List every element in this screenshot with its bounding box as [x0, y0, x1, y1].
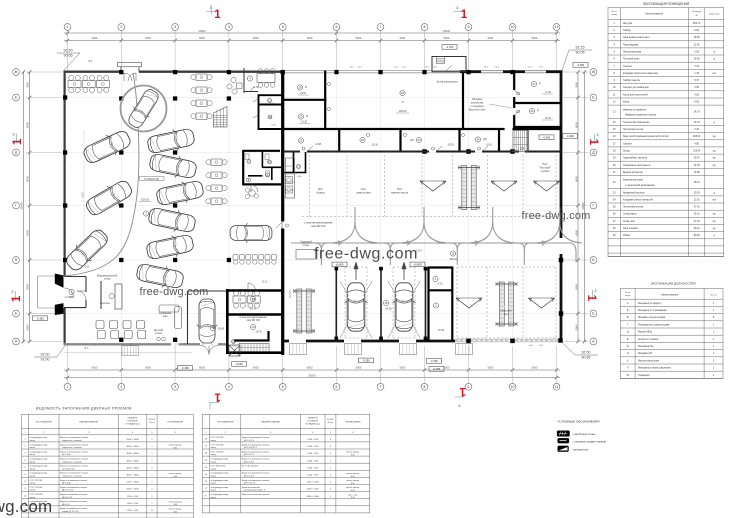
svg-text:Ворота металлические (скрытые): Ворота металлические (скрытые): [242, 494, 270, 496]
svg-text:19.57: 19.57: [694, 157, 701, 160]
svg-text:службы: службы: [541, 170, 550, 173]
svg-text:2100 × 910: 2100 × 910: [307, 466, 319, 469]
svg-text:заказу: заказу: [211, 476, 216, 478]
svg-text:по индивидуальному: по индивидуальному: [30, 451, 48, 453]
svg-text:РАЗМЕРЫ: РАЗМЕРЫ: [308, 417, 318, 420]
svg-text:В 60: В 60: [351, 490, 355, 492]
svg-text:Двери из алюминиевых сплавов: Двери из алюминиевых сплавов: [242, 451, 269, 453]
svg-text:6000: 6000: [92, 366, 98, 370]
svg-text:6000: 6000: [26, 176, 30, 182]
svg-text:металлические: металлические: [62, 468, 75, 470]
svg-text:Ок-1: Ок-1: [529, 345, 534, 347]
svg-text:3000: 3000: [26, 324, 30, 330]
svg-text:Ок-1: Ок-1: [350, 67, 355, 69]
svg-text:Ок-1: Ок-1: [539, 67, 544, 69]
svg-text:7: 7: [380, 25, 382, 29]
svg-text:Двери из алюминиевых сплавов: Двери из алюминиевых сплавов: [60, 501, 87, 503]
svg-text:В КЛАДКЕ (мм): В КЛАДКЕ (мм): [306, 423, 321, 426]
svg-text:М (шт): М (шт): [149, 422, 155, 424]
svg-text:16: 16: [385, 301, 388, 305]
svg-text:92.50: 92.50: [64, 49, 73, 53]
svg-text:Мастер МКЦ: Мастер МКЦ: [638, 332, 652, 334]
svg-text:-0.490: -0.490: [566, 134, 574, 138]
svg-text:8.94: 8.94: [69, 297, 74, 299]
svg-text:Двери из алюминиевых сплавов: Двери из алюминиевых сплавов: [242, 437, 269, 439]
svg-text:free-dwg.com: free-dwg.com: [0, 497, 52, 516]
svg-text:1: 1: [459, 385, 466, 397]
svg-text:ПРОЕМОВ: ПРОЕМОВ: [128, 421, 139, 423]
svg-text:диагностики: диагностики: [356, 192, 371, 195]
svg-text:разукомпл.: разукомпл.: [501, 311, 513, 313]
svg-text:Турникет: Турникет: [290, 289, 292, 298]
svg-text:Наименования: Наименования: [645, 12, 664, 16]
svg-text:М (шт): М (шт): [328, 422, 334, 424]
svg-text:Продавец отдела продаж: Продавец отдела продаж: [638, 317, 666, 319]
svg-text:Тамбур санузла: Тамбур санузла: [623, 80, 641, 82]
svg-text:заказу: заказу: [30, 440, 35, 442]
svg-text:уголок: уголок: [155, 332, 163, 335]
svg-text:14.30: 14.30: [694, 164, 701, 167]
svg-text:free-dwg.com: free-dwg.com: [139, 286, 208, 298]
svg-text:498.24: 498.24: [449, 258, 457, 261]
svg-text:12.91: 12.91: [694, 198, 701, 201]
svg-text:15.32: 15.32: [694, 213, 701, 216]
svg-text:Ворота из алюминиевых сплавов: Ворота из алюминиевых сплавов: [60, 473, 88, 475]
svg-text:Архиватной росотки: Архиватной росотки: [623, 191, 645, 194]
svg-text:5.07: 5.07: [694, 79, 699, 82]
svg-text:19: 19: [299, 86, 302, 90]
svg-text:/П: /П: [539, 84, 542, 86]
svg-text:6: 6: [336, 385, 338, 389]
svg-text:Двери из алюминиевых сплавов: Двери из алюминиевых сплавов: [242, 444, 269, 446]
svg-text:2100 × 910: 2100 × 910: [307, 474, 319, 477]
svg-text:заказу: заказу: [30, 454, 35, 456]
svg-text:заказу: заказу: [211, 447, 216, 449]
svg-text:6000: 6000: [575, 176, 579, 182]
svg-text:3600 × 3000: 3600 × 3000: [126, 459, 139, 462]
svg-text:14.68: 14.68: [315, 143, 322, 146]
svg-text:4: 4: [228, 25, 230, 29]
svg-text:ГОСТ 30970-2002: ГОСТ 30970-2002: [211, 466, 226, 468]
svg-text:ЭКСПЛИКАЦИЯ ДОЛЖНОСТЕЙ: ЭКСПЛИКАЦИЯ ДОЛЖНОСТЕЙ: [650, 282, 695, 286]
svg-text:плану: плану: [611, 14, 618, 16]
svg-text:20: 20: [300, 115, 303, 119]
svg-text:Лестничная клетка: Лестничная клетка: [623, 129, 644, 131]
svg-text:6.00: 6.00: [694, 101, 699, 104]
svg-text:30000: 30000: [198, 29, 206, 33]
svg-text:-1.700: -1.700: [446, 45, 454, 49]
svg-text:2100 × 910: 2100 × 910: [127, 509, 139, 512]
svg-text:1: 1: [67, 385, 69, 389]
svg-text:Касса: Касса: [623, 102, 630, 104]
svg-text:2100 × 910: 2100 × 910: [307, 445, 319, 448]
svg-text:Менеджер по врем. разукомпл.: Менеджер по врем. разукомпл.: [638, 368, 672, 370]
svg-text:по индивидуальному: по индивидуальному: [211, 487, 229, 489]
svg-text:+0.000: +0.000: [413, 263, 422, 267]
svg-text:/П: /П: [537, 111, 540, 113]
svg-text:15.78: 15.78: [256, 331, 263, 334]
svg-text:2100 × 1310: 2100 × 1310: [307, 481, 320, 484]
svg-text:Ворота из алюминиевых сплавов: Ворота из алюминиевых сплавов: [60, 459, 88, 461]
svg-text:6000: 6000: [145, 366, 151, 370]
svg-text:1: 1: [214, 391, 221, 403]
svg-text:Лестничная клетка: Лестничная клетка: [623, 207, 644, 209]
svg-text:ПРИМЕЧАНИЕ: ПРИМЕЧАНИЕ: [345, 421, 361, 424]
svg-text:1*: 1*: [205, 488, 207, 490]
svg-text:5.50: 5.50: [694, 50, 699, 53]
svg-text:free-dwg.com: free-dwg.com: [314, 246, 418, 263]
svg-text:Ворота из алюминиевых сплавов: Ворота из алюминиевых сплавов: [60, 451, 88, 453]
svg-text:В-2: В-2: [89, 60, 93, 63]
svg-text:Менеджер по страхованию: Менеджер по страхованию: [638, 310, 667, 312]
svg-text:ДН О Б 21-13: ДН О Б 21-13: [244, 483, 255, 485]
svg-text:Охранники: Охранники: [638, 375, 650, 377]
svg-text:1: 1: [585, 295, 597, 302]
svg-text:заказу: заказу: [30, 461, 35, 463]
svg-text:ГОСТ 23747-88: ГОСТ 23747-88: [211, 444, 224, 446]
svg-text:-5.000: -5.000: [577, 63, 585, 67]
svg-text:Кладовая уборочного инвентаря: Кладовая уборочного инвентаря: [623, 73, 658, 75]
svg-text:6000: 6000: [26, 122, 30, 128]
svg-text:9: 9: [468, 385, 470, 389]
svg-text:6000: 6000: [575, 283, 579, 289]
svg-text:заказу: заказу: [30, 490, 35, 492]
svg-text:26.80: 26.80: [218, 328, 225, 331]
svg-text:ДН О Б 21-9: ДН О Б 21-9: [244, 461, 254, 463]
svg-text:-0.780: -0.780: [433, 367, 441, 371]
svg-text:по индивидуальному: по индивидуальному: [30, 508, 48, 510]
svg-text:НАИМЕНОВАНИЕ: НАИМЕНОВАНИЕ: [261, 421, 280, 424]
svg-text:3600 × 3000: 3600 × 3000: [126, 445, 139, 448]
svg-text:заказу: заказу: [30, 497, 35, 499]
svg-text:заказу: заказу: [211, 490, 216, 492]
svg-text:18: 18: [401, 91, 404, 95]
svg-text:заказу: заказу: [30, 447, 35, 449]
svg-text:ВД: ВД: [713, 150, 716, 152]
svg-text:секционные с калиткой: секционные с калиткой: [62, 460, 81, 463]
svg-text:18.10: 18.10: [372, 144, 379, 147]
svg-text:М: М: [627, 374, 629, 377]
svg-text:ДА О Б 21-10: ДА О Б 21-10: [62, 489, 73, 492]
svg-text:Высотой 0.15м: Высотой 0.15м: [469, 109, 486, 112]
svg-text:замены масла: замены масла: [391, 192, 408, 195]
svg-text:Двери из алюминиевых сплавов: Двери из алюминиевых сплавов: [60, 480, 87, 482]
svg-text:17.91: 17.91: [694, 206, 701, 209]
svg-text:2100 × 1010: 2100 × 1010: [307, 488, 320, 491]
svg-text:№ по: № по: [612, 10, 618, 13]
svg-text:16: 16: [452, 252, 455, 256]
svg-text:2100 × 910: 2100 × 910: [307, 459, 319, 462]
svg-text:+0.000: +0.000: [335, 263, 344, 267]
svg-text:по индивидуальному: по индивидуальному: [211, 480, 229, 482]
svg-text:полотна приоткр.: полотна приоткр.: [168, 509, 182, 511]
svg-text:Ок-1: Ок-1: [484, 67, 489, 69]
svg-text:Ок-1: Ок-1: [433, 67, 438, 69]
svg-text:УСЛОВНЫЕ ОБОЗНАЧЕНИЯ: УСЛОВНЫЕ ОБОЗНАЧЕНИЯ: [557, 420, 599, 424]
svg-text:Кол-во: Кол-во: [710, 295, 717, 297]
svg-text:3: 3: [174, 385, 176, 389]
svg-text:Дин — №д: Дин — №д: [349, 493, 357, 496]
svg-text:ПРОЕМОВ: ПРОЕМОВ: [308, 421, 319, 423]
svg-text:-0.490: -0.490: [543, 135, 551, 139]
svg-text:Названия сервисного центра: Названия сервисного центра: [625, 115, 657, 117]
svg-text:91.00: 91.00: [41, 358, 50, 362]
svg-text:16.48: 16.48: [694, 58, 701, 61]
svg-text:Склад масел: Склад масел: [623, 214, 637, 216]
svg-text:3000 × 3000: 3000 × 3000: [307, 495, 320, 498]
svg-text:11: 11: [555, 385, 559, 389]
svg-text:10: 10: [268, 160, 271, 164]
svg-text:ВД: ВД: [713, 165, 716, 167]
svg-text:619.30: 619.30: [141, 199, 149, 202]
svg-text:6: 6: [336, 25, 338, 29]
svg-text:В-12: В-12: [262, 281, 268, 284]
svg-text:Двери из алюминиевых сплавов: Двери из алюминиевых сплавов: [242, 480, 269, 482]
svg-text:14.14: 14.14: [250, 308, 257, 311]
svg-text:5000: 5000: [400, 366, 406, 370]
svg-text:14.14: 14.14: [694, 111, 701, 114]
svg-text:В 60: В 60: [173, 504, 177, 506]
svg-text:Примечание: Примечание: [709, 14, 719, 16]
svg-text:-0.180: -0.180: [181, 366, 189, 370]
svg-text:стенд: стенд: [303, 245, 310, 247]
svg-text:Г: Г: [15, 204, 17, 208]
svg-text:ВС Г Б Пу 2100-910: ВС Г Б Пу 2100-910: [242, 466, 258, 468]
svg-text:6000: 6000: [26, 283, 30, 289]
svg-text:Ворота из алюминиевых сплавов: Ворота из алюминиевых сплавов: [60, 437, 88, 439]
svg-text:ВД: ВД: [713, 158, 716, 160]
svg-text:16.48: 16.48: [438, 330, 444, 332]
svg-text:Склад шин: Склад шин: [623, 221, 635, 223]
svg-text:12: 12: [269, 115, 272, 119]
svg-text:секционные с калиткой: секционные с калиткой: [62, 446, 81, 449]
svg-text:90.05: 90.05: [576, 51, 585, 55]
svg-text:3000: 3000: [575, 81, 579, 87]
svg-text:2100 × 910: 2100 × 910: [127, 502, 139, 505]
svg-text:6000: 6000: [575, 229, 579, 235]
svg-text:В 60: В 60: [351, 497, 355, 499]
svg-text:ДП: ДП: [483, 138, 487, 141]
svg-text:5000: 5000: [488, 366, 494, 370]
svg-text:ДН О Б Дв: ДН О Б Дв: [62, 483, 71, 485]
svg-text:14.68: 14.68: [694, 171, 701, 174]
svg-text:Электрощитовая: Электрощитовая: [623, 51, 642, 53]
svg-text:авто: авто: [504, 314, 509, 316]
svg-text:/П: /П: [401, 102, 404, 104]
svg-text:6000: 6000: [26, 229, 30, 235]
svg-text:2100 × 910: 2100 × 910: [307, 438, 319, 441]
svg-text:Технические помещения: Технические помещения: [623, 122, 650, 124]
svg-text:В 60: В 60: [173, 447, 177, 449]
svg-text:Зона техобслуживания ремонта (: Зона техобслуживания ремонта (6 постов): [623, 136, 669, 138]
svg-text:Г: Г: [592, 204, 594, 208]
svg-text:2200 × 1300: 2200 × 1300: [126, 488, 139, 491]
svg-text:заказу: заказу: [211, 454, 216, 456]
svg-text:ВМ: ВМ: [713, 73, 716, 75]
svg-text:полотна приоткр.: полотна приоткр.: [346, 487, 360, 489]
svg-text:полотна приоткр.: полотна приоткр.: [346, 452, 360, 454]
svg-text:2: 2: [120, 385, 122, 389]
svg-text:18.10: 18.10: [694, 181, 701, 184]
svg-text:заказу: заказу: [211, 483, 216, 485]
svg-text:В 60: В 60: [173, 476, 177, 478]
svg-text:3000: 3000: [26, 81, 30, 87]
svg-text:Ок-1: Ок-1: [358, 67, 363, 69]
svg-text:21: 21: [300, 139, 303, 143]
svg-text:по индивидуальному: по индивидуальному: [30, 466, 48, 468]
svg-text:Ворота из алюминиевых сплавов: Ворота из алюминиевых сплавов: [60, 466, 88, 468]
svg-text:Санузел: Санузел: [623, 66, 633, 68]
svg-text:Санузел для инвалидов: Санузел для инвалидов: [623, 87, 649, 89]
svg-text:2: 2: [120, 25, 122, 29]
svg-text:В 60: В 60: [173, 511, 177, 513]
svg-text:-0.150: -0.150: [36, 316, 44, 320]
svg-text:14.57: 14.57: [300, 92, 307, 95]
svg-text:В КЛАДКЕ (мм): В КЛАДКЕ (мм): [125, 423, 140, 426]
svg-text:1: 1: [461, 9, 468, 21]
svg-text:5000: 5000: [532, 36, 538, 40]
svg-text:Зона приемки: Зона приемки: [623, 228, 639, 230]
svg-text:92.50: 92.50: [582, 351, 591, 355]
svg-text:Ок-1: Ок-1: [394, 67, 399, 69]
svg-text:92.15: 92.15: [576, 46, 585, 50]
svg-text:3.43: 3.43: [694, 65, 699, 68]
svg-text:1.78: 1.78: [694, 72, 699, 75]
svg-text:ДН О Б 21-9: ДН О Б 21-9: [244, 476, 254, 478]
svg-text:ДА 21-10: ДА 21-10: [62, 503, 70, 506]
svg-text:8: 8: [424, 385, 426, 389]
svg-text:полотна приоткр.: полотна приоткр.: [346, 480, 360, 482]
svg-text:/П: /П: [305, 87, 308, 89]
svg-text:стенд: стенд: [104, 278, 111, 281]
svg-text:Двери из алюминиевых сплавов: Двери из алюминиевых сплавов: [60, 487, 87, 489]
svg-text:17: 17: [297, 165, 300, 169]
svg-text:3600 × 3000: 3600 × 3000: [126, 466, 139, 469]
svg-text:В-3: В-3: [85, 347, 89, 350]
svg-text:8: 8: [424, 25, 426, 29]
svg-text:Двери из алюминиевых сплавов: Двери из алюминиевых сплавов: [242, 459, 269, 461]
svg-text:ВД: ВД: [713, 228, 716, 230]
svg-text:4.00: 4.00: [694, 93, 699, 96]
svg-text:17.02: 17.02: [694, 220, 701, 223]
svg-text:1: 1: [214, 9, 221, 21]
svg-text:Зона выдачи новых авто: Зона выдачи новых авто: [623, 37, 650, 39]
svg-text:ВД: ВД: [713, 221, 716, 223]
svg-text:ДН О Б 21-9: ДН О Б 21-9: [244, 454, 254, 456]
svg-text:R=300(Ж=40): R=300(Ж=40): [145, 179, 160, 181]
svg-text:Гарантийные запчасти: Гарантийные запчасти: [623, 157, 648, 160]
svg-text:3*: 3*: [205, 495, 207, 497]
svg-text:24: 24: [477, 138, 480, 142]
svg-text:заказу: заказу: [30, 511, 35, 513]
svg-text:90.85: 90.85: [582, 356, 591, 360]
svg-text:по индивидуальному: по индивидуальному: [30, 444, 48, 446]
svg-text:ДН О Б Пр 21-9: ДН О Б Пр 21-9: [244, 447, 257, 449]
svg-text:Двери металлические: Двери металлические: [242, 487, 260, 489]
svg-text:16.78: 16.78: [694, 121, 701, 124]
svg-text:1: 1: [587, 139, 599, 146]
svg-text:КОЛ-ВО: КОЛ-ВО: [149, 419, 156, 421]
svg-text:10: 10: [511, 385, 515, 389]
svg-text:ДН О Б Дв: ДН О Б Дв: [62, 454, 71, 456]
svg-text:ВЕДОМОСТЬ ЗАПОЛНЕНИЯ ДВЕРНЫХ: ВЕДОМОСТЬ ЗАПОЛНЕНИЯ ДВЕРНЫХ ПРОЕМОВ: [36, 406, 132, 410]
svg-text:Касса для посетителей: Касса для посетителей: [623, 93, 648, 96]
svg-text:заказу: заказу: [211, 461, 216, 463]
svg-text:6000: 6000: [199, 36, 205, 40]
svg-text:ВМ: ВМ: [713, 199, 716, 201]
svg-text:В 60: В 60: [351, 476, 355, 478]
svg-text:14.30: 14.30: [301, 121, 308, 124]
svg-text:3600 × 3000: 3600 × 3000: [126, 474, 139, 477]
svg-text:Тамбур: Тамбур: [623, 30, 632, 32]
svg-text:Тепловой пункт: Тепловой пункт: [623, 58, 641, 61]
svg-text:Двери из алюминиевых сплавов: Двери из алюминиевых сплавов: [60, 494, 87, 496]
svg-text:2100 × 1300: 2100 × 1300: [126, 481, 139, 484]
svg-text:27: 27: [533, 82, 536, 86]
svg-text:- стеновые сэндвич панели: - стеновые сэндвич панели: [572, 440, 607, 443]
svg-text:Ок-1: Ок-1: [425, 67, 430, 69]
svg-text:по индивидуальному: по индивидуальному: [30, 437, 48, 439]
svg-text:ЭКСПЛИКАЦИЯ ПОМЕЩЕНИЙ: ЭКСПЛИКАЦИЯ ПОМЕЩЕНИЙ: [643, 2, 690, 6]
svg-text:13: 13: [252, 297, 255, 301]
svg-text:5000: 5000: [356, 366, 362, 370]
svg-text:26.80: 26.80: [694, 36, 701, 39]
svg-text:по индивидуальному: по индивидуальному: [211, 473, 229, 475]
svg-text:КОЛ-ВО: КОЛ-ВО: [327, 419, 334, 421]
svg-text:ДП: ДП: [410, 139, 414, 142]
svg-text:Ворота из алюминиевых сплавов: Ворота из алюминиевых сплавов: [60, 444, 88, 446]
svg-text:free-dwg.com: free-dwg.com: [521, 210, 590, 222]
svg-text:ВД: ВД: [713, 136, 716, 138]
svg-text:заказу: заказу: [30, 468, 35, 470]
svg-text:2500 × 2000: 2500 × 2000: [126, 438, 139, 441]
svg-text:132.04: 132.04: [693, 149, 701, 152]
svg-text:по индивидуальному: по индивидуальному: [30, 459, 48, 461]
svg-text:Выдача запчастей: Выдача запчастей: [623, 171, 643, 174]
svg-text:-0.020: -0.020: [235, 362, 243, 366]
svg-text:5: 5: [282, 385, 284, 389]
svg-text:заказу: заказу: [211, 440, 216, 442]
svg-text:9: 9: [468, 25, 470, 29]
svg-text:5000: 5000: [356, 36, 362, 40]
svg-text:по индивидуальному: по индивидуальному: [30, 473, 48, 475]
svg-text:3000: 3000: [575, 324, 579, 330]
svg-text:8.94: 8.94: [694, 29, 699, 32]
svg-text:Переговорная: Переговорная: [623, 44, 639, 46]
svg-text:заказу: заказу: [211, 497, 216, 499]
svg-text:ГОСТ 23747-88: ГОСТ 23747-88: [30, 480, 43, 482]
svg-text:6000: 6000: [92, 36, 98, 40]
svg-text:НАИМЕНОВАНИЕ: НАИМЕНОВАНИЕ: [79, 421, 98, 424]
svg-text:Ок-1: Ок-1: [539, 345, 544, 347]
svg-text:3.30: 3.30: [694, 86, 699, 89]
svg-text:Мойка: Мойка: [623, 234, 631, 237]
svg-text:11.82: 11.82: [694, 43, 700, 46]
svg-text:1: 1: [12, 138, 24, 145]
svg-text:К/диванная: К/диванная: [159, 313, 172, 315]
svg-text:зона: зона: [163, 316, 169, 318]
svg-text:4: 4: [228, 385, 230, 389]
svg-text:И: И: [627, 352, 629, 355]
svg-text:ДА О Б 21-9: ДА О Б 21-9: [62, 496, 72, 499]
svg-text:противопожарные ДП 1 Б: противопожарные ДП 1 Б: [244, 490, 266, 492]
svg-text:Шоу-рум: Шоу-рум: [623, 23, 633, 25]
svg-text:23: 23: [418, 138, 421, 142]
svg-text:10.81: 10.81: [486, 144, 493, 147]
svg-text:Санузел: Санузел: [623, 143, 633, 145]
svg-text:заказу: заказу: [30, 476, 35, 478]
svg-text:30000: 30000: [20, 202, 24, 210]
